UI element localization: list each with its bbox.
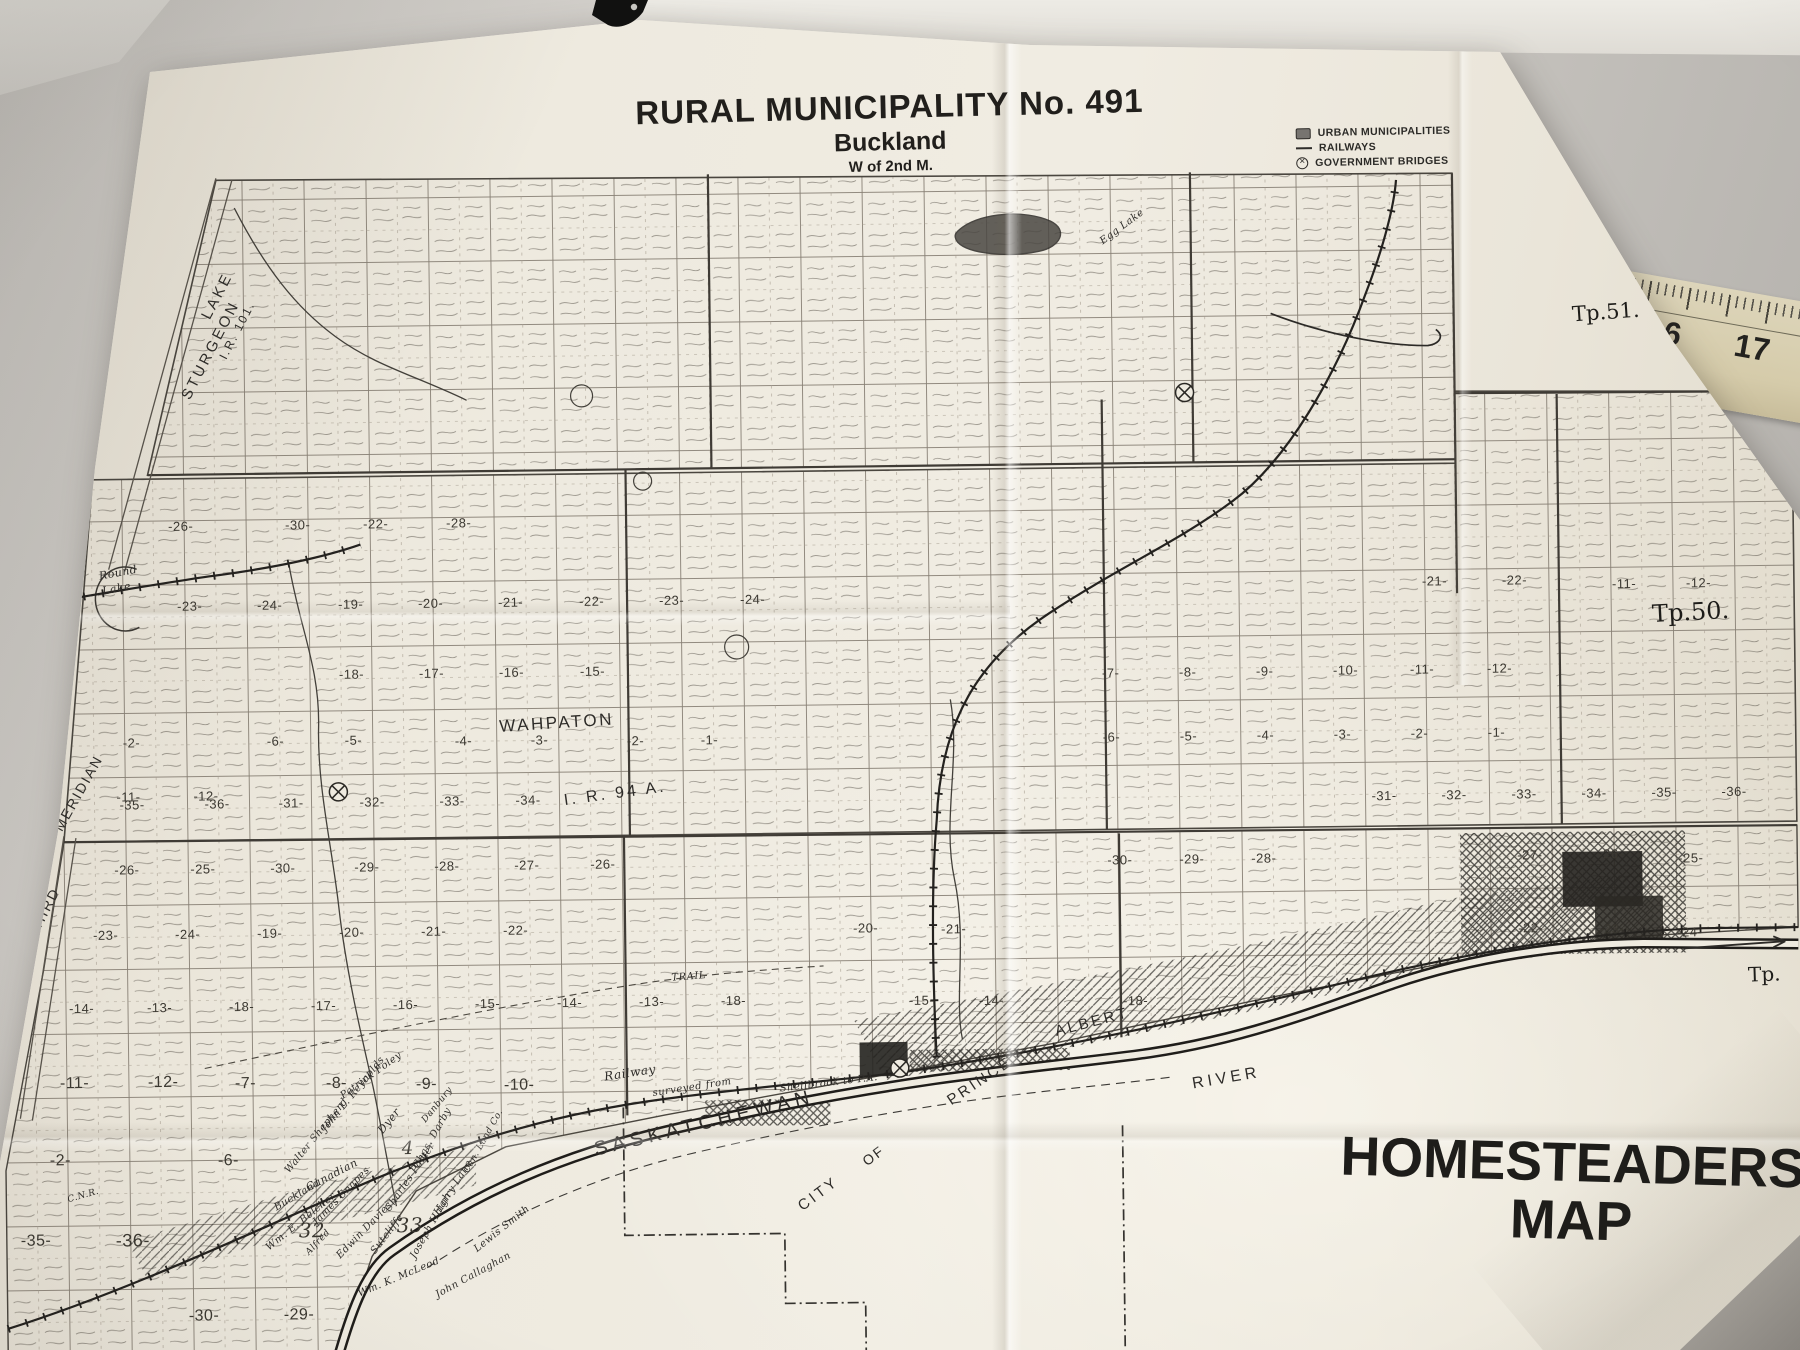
section-number: -15- xyxy=(475,996,500,1011)
township-50-label: Tp.50. xyxy=(1651,596,1730,628)
section-number: -27- xyxy=(1517,847,1542,862)
section-number: -12- xyxy=(148,1074,179,1091)
section-number: -31- xyxy=(278,795,303,810)
section-number: -20- xyxy=(853,920,878,935)
section-number: -2- xyxy=(1411,726,1429,741)
section-number: -15- xyxy=(909,993,934,1008)
section-number: -18- xyxy=(339,667,364,682)
map-paper: STURGEONLAKEI.R. 101.RoundLakeWAHPATONI.… xyxy=(0,0,1800,1350)
section-number: -28- xyxy=(446,515,471,530)
legend-label: GOVERNMENT BRIDGES xyxy=(1315,155,1448,169)
section-number: -12- xyxy=(1686,575,1711,590)
section-number: -24- xyxy=(740,592,765,607)
homesteader-name: John Callaghan xyxy=(432,1250,513,1301)
section-number: -18- xyxy=(721,993,746,1008)
section-number: -14- xyxy=(557,995,582,1010)
section-number: -30- xyxy=(1107,852,1132,867)
section-number: -32- xyxy=(1441,787,1466,802)
section-number: -4- xyxy=(455,733,473,748)
township-partial-label: Tp. xyxy=(1748,961,1781,986)
section-number: -35- xyxy=(1651,785,1676,800)
section-number: -5- xyxy=(1180,728,1198,743)
section-number: -22- xyxy=(1502,572,1527,587)
section-number: -26- xyxy=(168,519,193,534)
section-number: -29- xyxy=(1179,851,1204,866)
section-number: -6- xyxy=(218,1152,239,1169)
section-number: -12- xyxy=(1487,661,1512,676)
section-number: -30- xyxy=(270,860,295,875)
section-number: -19- xyxy=(338,597,363,612)
section-number: -11- xyxy=(1410,661,1434,676)
section-number: -23- xyxy=(1599,921,1624,936)
railways-icon xyxy=(1296,147,1312,149)
section-number: -12- xyxy=(193,788,218,803)
section-number: -21- xyxy=(1422,573,1447,588)
section-number: -34- xyxy=(1581,785,1606,800)
section-number: -30- xyxy=(189,1307,220,1324)
section-number: -4- xyxy=(1257,727,1275,742)
section-number: -32- xyxy=(359,794,384,809)
section-number: -5- xyxy=(345,733,363,748)
section-number: -22- xyxy=(1518,920,1543,935)
section-number: -1- xyxy=(701,732,719,747)
section-number: -16- xyxy=(499,665,524,680)
section-number: -10- xyxy=(504,1076,535,1093)
section-number: -21- xyxy=(421,924,446,939)
section-number: -26- xyxy=(1598,846,1623,861)
section-number: -33- xyxy=(1511,786,1536,801)
government-bridges-icon xyxy=(1296,157,1308,169)
section-number: 4 xyxy=(401,1138,414,1159)
township-51-label: Tp.51. xyxy=(1571,298,1640,327)
section-number: -29- xyxy=(284,1306,315,1323)
section-number: -22- xyxy=(363,516,388,531)
section-number: 32 xyxy=(299,1218,326,1242)
river-label: RIVER xyxy=(1191,1064,1262,1092)
section-number: -21- xyxy=(941,921,966,936)
section-number: -28- xyxy=(434,858,459,873)
homesteaders-map-title: HOMESTEADERS MAP xyxy=(1320,1123,1800,1259)
urban-municipalities-icon xyxy=(1296,128,1311,139)
map-legend: URBAN MUNICIPALITIES RAILWAYS GOVERNMENT… xyxy=(1296,125,1451,173)
section-number: -22- xyxy=(503,923,528,938)
homesteader-name: Lewis Smith xyxy=(471,1203,532,1255)
section-number: -11- xyxy=(1612,576,1636,591)
section-number: -13- xyxy=(147,1000,172,1015)
section-number: -22- xyxy=(579,594,604,609)
section-number: -13- xyxy=(639,994,664,1009)
section-number: -31- xyxy=(1371,788,1396,803)
section-number: -24- xyxy=(175,927,200,942)
section-number: -14- xyxy=(979,993,1004,1008)
section-number: -15- xyxy=(580,664,605,679)
section-number: -17- xyxy=(419,666,444,681)
section-number: -35- xyxy=(21,1232,52,1249)
section-number: -27- xyxy=(514,857,539,872)
map-paper-wrapper: STURGEONLAKEI.R. 101.RoundLakeWAHPATONI.… xyxy=(0,0,1800,1350)
section-number: -33- xyxy=(439,793,464,808)
section-number: -18- xyxy=(229,999,254,1014)
legend-label: URBAN MUNICIPALITIES xyxy=(1318,125,1451,139)
city-boundary xyxy=(623,1101,1125,1350)
section-number: -8- xyxy=(1179,664,1197,679)
city-of-label: OF xyxy=(859,1142,887,1169)
section-number: -9- xyxy=(1256,663,1274,678)
city-of-label: CITY xyxy=(795,1173,842,1214)
section-number: -16- xyxy=(393,997,418,1012)
section-number: -11- xyxy=(116,789,140,804)
section-number: -36- xyxy=(116,1230,150,1250)
section-number: -7- xyxy=(1102,665,1120,680)
section-number: -25- xyxy=(190,861,215,876)
section-number: 33 xyxy=(397,1213,424,1237)
section-number: -2- xyxy=(50,1152,71,1169)
section-number: -24- xyxy=(257,598,282,613)
section-number: -3- xyxy=(1334,726,1352,741)
section-number: -2- xyxy=(123,735,141,750)
section-number: -6- xyxy=(1103,729,1121,744)
section-number: -23- xyxy=(659,593,684,608)
section-number: -7- xyxy=(235,1075,256,1092)
section-number: -6- xyxy=(267,734,285,749)
section-number: -28- xyxy=(1251,850,1276,865)
legend-label: RAILWAYS xyxy=(1319,141,1376,154)
section-number: -19- xyxy=(257,926,282,941)
section-number: -26- xyxy=(590,856,615,871)
section-number: -9- xyxy=(416,1076,437,1093)
section-number: -1- xyxy=(1488,725,1506,740)
section-number: -20- xyxy=(418,596,443,611)
section-number: -2- xyxy=(627,733,645,748)
legend-row: URBAN MUNICIPALITIES xyxy=(1296,125,1451,140)
section-number: -36- xyxy=(1721,784,1746,799)
section-number: -21- xyxy=(498,595,523,610)
section-number: -34- xyxy=(515,792,540,807)
section-number: -24- xyxy=(1677,924,1702,939)
legend-row: RAILWAYS xyxy=(1296,140,1451,155)
section-number: -3- xyxy=(531,732,549,747)
photo-of-homesteaders-map: 6 17 xyxy=(0,0,1800,1350)
section-number: -18- xyxy=(1123,993,1148,1008)
section-number: -14- xyxy=(69,1001,94,1016)
section-number: -26- xyxy=(114,862,139,877)
section-number: -11- xyxy=(60,1075,89,1092)
section-number: -20- xyxy=(339,925,364,940)
section-number: -17- xyxy=(311,998,336,1013)
section-number: -25- xyxy=(1678,850,1703,865)
map-title-block: RURAL MUNICIPALITY No. 491 Buckland W of… xyxy=(559,80,1221,183)
section-number: -23- xyxy=(93,928,118,943)
section-number: -29- xyxy=(354,859,379,874)
legend-row: GOVERNMENT BRIDGES xyxy=(1296,155,1451,170)
section-number: -10- xyxy=(1333,662,1358,677)
section-number: -23- xyxy=(177,599,202,614)
section-number: -30- xyxy=(285,517,310,532)
dark-object-artifact xyxy=(582,0,662,38)
section-number: -8- xyxy=(326,1075,347,1092)
